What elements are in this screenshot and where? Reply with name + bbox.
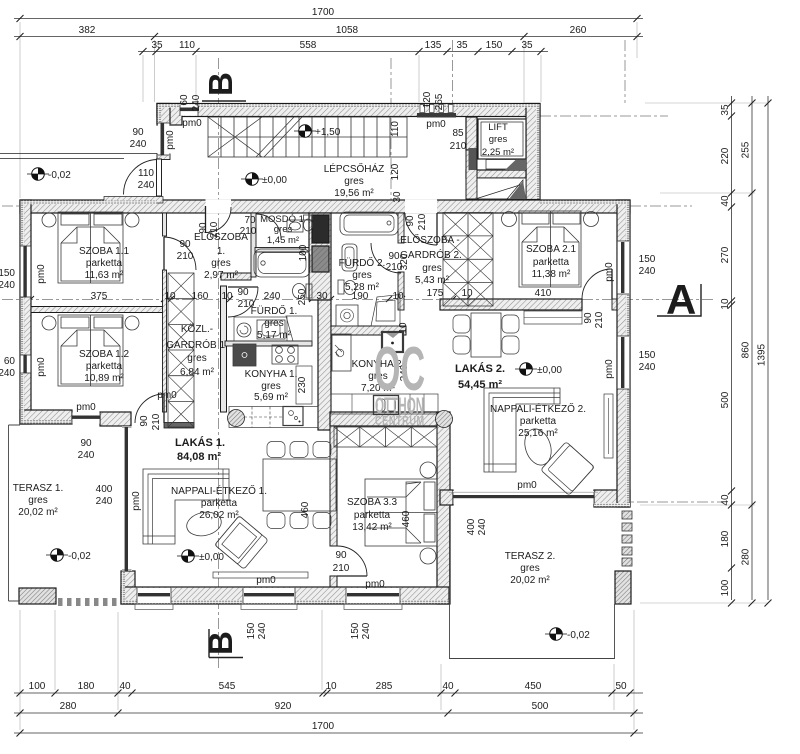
svg-text:SZOBA 2.1: SZOBA 2.1 bbox=[526, 244, 576, 255]
svg-text:70: 70 bbox=[244, 215, 256, 226]
svg-text:150: 150 bbox=[246, 622, 257, 639]
svg-text:TERASZ 2.: TERASZ 2. bbox=[505, 551, 556, 562]
svg-text:40: 40 bbox=[119, 681, 131, 692]
svg-text:180: 180 bbox=[78, 681, 95, 692]
svg-text:210: 210 bbox=[238, 299, 255, 310]
svg-text:90: 90 bbox=[80, 438, 92, 449]
svg-text:210: 210 bbox=[177, 251, 194, 262]
svg-text:parketta: parketta bbox=[520, 416, 557, 427]
svg-text:240: 240 bbox=[639, 266, 656, 277]
svg-text:pm0: pm0 bbox=[131, 491, 142, 511]
svg-text:54,45 m²: 54,45 m² bbox=[458, 379, 502, 391]
svg-text:40: 40 bbox=[720, 494, 731, 506]
svg-text:pm0: pm0 bbox=[604, 359, 615, 379]
svg-text:220: 220 bbox=[720, 147, 731, 164]
svg-text:1,45 m²: 1,45 m² bbox=[267, 235, 299, 246]
svg-text:20,02 m²: 20,02 m² bbox=[18, 507, 58, 518]
svg-text:SZOBA 3.3: SZOBA 3.3 bbox=[347, 497, 397, 508]
svg-text:500: 500 bbox=[532, 701, 549, 712]
svg-text:150: 150 bbox=[0, 268, 15, 279]
svg-text:240: 240 bbox=[138, 180, 155, 191]
svg-text:NAPPALI-ÉTKEZŐ 1.: NAPPALI-ÉTKEZŐ 1. bbox=[171, 483, 267, 497]
svg-text:120: 120 bbox=[422, 91, 433, 108]
svg-text:26,02 m²: 26,02 m² bbox=[199, 510, 239, 521]
svg-text:230: 230 bbox=[297, 376, 308, 393]
svg-text:558: 558 bbox=[300, 40, 317, 51]
svg-text:285: 285 bbox=[376, 681, 393, 692]
svg-text:10: 10 bbox=[720, 298, 731, 310]
svg-text:40: 40 bbox=[442, 681, 454, 692]
svg-text:1395: 1395 bbox=[757, 343, 768, 366]
svg-text:pm0: pm0 bbox=[76, 402, 96, 413]
svg-text:KONYHA 1.: KONYHA 1. bbox=[245, 369, 298, 380]
svg-text:460: 460 bbox=[300, 501, 311, 518]
svg-text:160: 160 bbox=[192, 291, 209, 302]
svg-text:pm0: pm0 bbox=[36, 264, 47, 284]
svg-text:90: 90 bbox=[139, 415, 150, 427]
svg-text:25,16 m²: 25,16 m² bbox=[518, 428, 558, 439]
svg-text:pm0: pm0 bbox=[165, 130, 176, 150]
svg-text:400: 400 bbox=[466, 518, 477, 535]
svg-text:120: 120 bbox=[390, 163, 401, 180]
svg-text:85: 85 bbox=[452, 128, 464, 139]
svg-text:10: 10 bbox=[461, 288, 473, 299]
svg-text:SZOBA 1.2: SZOBA 1.2 bbox=[79, 349, 129, 360]
svg-text:5,43 m²: 5,43 m² bbox=[415, 275, 450, 286]
svg-text:10: 10 bbox=[221, 291, 233, 302]
svg-text:pm0: pm0 bbox=[604, 262, 615, 282]
svg-text:10: 10 bbox=[325, 681, 337, 692]
svg-text:+1,50: +1,50 bbox=[315, 127, 341, 138]
svg-text:gres: gres bbox=[344, 176, 363, 187]
svg-text:KÖZL.-: KÖZL.- bbox=[181, 323, 213, 335]
svg-text:100: 100 bbox=[29, 681, 46, 692]
svg-text:pm0: pm0 bbox=[426, 119, 446, 130]
svg-text:LAKÁS 2.: LAKÁS 2. bbox=[455, 362, 505, 375]
svg-text:pm0: pm0 bbox=[256, 575, 276, 586]
svg-text:210: 210 bbox=[333, 563, 350, 574]
svg-text:1.: 1. bbox=[217, 246, 225, 257]
svg-text:ELŐSZOBA -: ELŐSZOBA - bbox=[400, 232, 459, 246]
svg-text:450: 450 bbox=[525, 681, 542, 692]
svg-text:13,42 m²: 13,42 m² bbox=[352, 522, 392, 533]
svg-text:11,63 m²: 11,63 m² bbox=[85, 270, 124, 281]
svg-text:gres: gres bbox=[187, 353, 206, 364]
svg-text:110: 110 bbox=[390, 121, 401, 137]
svg-text:100: 100 bbox=[298, 244, 309, 261]
svg-text:-0,02: -0,02 bbox=[48, 170, 71, 181]
svg-text:90: 90 bbox=[335, 550, 347, 561]
svg-text:2,97 m²: 2,97 m² bbox=[204, 270, 239, 281]
svg-text:375: 375 bbox=[91, 291, 108, 302]
svg-text:FÜRDŐ 1.: FÜRDŐ 1. bbox=[251, 303, 298, 317]
svg-text:240: 240 bbox=[96, 496, 113, 507]
svg-text:35: 35 bbox=[521, 40, 533, 51]
svg-text:920: 920 bbox=[275, 701, 292, 712]
svg-text:-0,02: -0,02 bbox=[68, 551, 91, 562]
svg-text:SZOBA 1.1: SZOBA 1.1 bbox=[79, 246, 129, 257]
svg-text:60: 60 bbox=[4, 356, 16, 367]
svg-text:100: 100 bbox=[720, 579, 731, 596]
svg-text:gres: gres bbox=[28, 495, 47, 506]
svg-text:210: 210 bbox=[240, 226, 257, 237]
svg-text:270: 270 bbox=[720, 246, 731, 263]
svg-text:260: 260 bbox=[570, 25, 587, 36]
svg-text:240: 240 bbox=[477, 518, 488, 535]
svg-text:110: 110 bbox=[179, 40, 195, 51]
svg-text:280: 280 bbox=[741, 548, 752, 565]
svg-text:110: 110 bbox=[138, 168, 154, 179]
svg-text:gres: gres bbox=[422, 263, 441, 274]
svg-text:150: 150 bbox=[350, 622, 361, 639]
svg-text:250: 250 bbox=[297, 288, 308, 305]
svg-text:280: 280 bbox=[60, 701, 77, 712]
svg-text:20,02 m²: 20,02 m² bbox=[510, 575, 550, 586]
svg-text:90: 90 bbox=[179, 239, 191, 250]
svg-text:LIFT: LIFT bbox=[488, 122, 508, 133]
svg-text:84,08 m²: 84,08 m² bbox=[177, 451, 221, 463]
svg-text:parketta: parketta bbox=[533, 257, 570, 268]
svg-text:90: 90 bbox=[237, 287, 249, 298]
svg-text:B: B bbox=[202, 72, 239, 96]
svg-text:240: 240 bbox=[130, 139, 147, 150]
svg-text:210: 210 bbox=[417, 213, 428, 230]
svg-text:gres: gres bbox=[520, 563, 539, 574]
svg-text:240: 240 bbox=[639, 362, 656, 373]
svg-text:90: 90 bbox=[388, 251, 400, 262]
svg-text:210: 210 bbox=[450, 141, 467, 152]
svg-text:50: 50 bbox=[615, 681, 627, 692]
svg-text:150: 150 bbox=[639, 350, 656, 361]
svg-text:382: 382 bbox=[79, 25, 96, 36]
svg-text:1700: 1700 bbox=[312, 7, 335, 18]
svg-text:-0,02: -0,02 bbox=[567, 630, 590, 641]
svg-text:LAKÁS 1.: LAKÁS 1. bbox=[175, 436, 225, 449]
svg-text:240: 240 bbox=[361, 622, 372, 639]
svg-text:5,69 m²: 5,69 m² bbox=[254, 392, 289, 403]
svg-text:pm0: pm0 bbox=[182, 118, 202, 129]
svg-text:TERASZ 1.: TERASZ 1. bbox=[13, 483, 64, 494]
svg-text:240: 240 bbox=[0, 280, 15, 291]
svg-text:240: 240 bbox=[0, 368, 15, 379]
svg-text:6,84 m²: 6,84 m² bbox=[180, 367, 215, 378]
svg-text:150: 150 bbox=[486, 40, 503, 51]
svg-text:240: 240 bbox=[191, 94, 202, 111]
svg-text:gres: gres bbox=[352, 270, 371, 281]
svg-text:35: 35 bbox=[151, 40, 163, 51]
svg-text:19,56 m²: 19,56 m² bbox=[334, 188, 374, 199]
svg-text:255: 255 bbox=[741, 141, 752, 158]
svg-text:10: 10 bbox=[398, 322, 409, 334]
svg-text:210: 210 bbox=[386, 262, 403, 273]
svg-text:90: 90 bbox=[405, 215, 416, 227]
svg-text:GARDRÓB 1.: GARDRÓB 1. bbox=[166, 338, 228, 351]
svg-text:30: 30 bbox=[316, 291, 328, 302]
svg-text:210: 210 bbox=[594, 311, 605, 328]
svg-text:90: 90 bbox=[198, 222, 209, 234]
svg-text:175: 175 bbox=[427, 288, 444, 299]
svg-text:460: 460 bbox=[401, 510, 412, 527]
svg-text:gres: gres bbox=[211, 258, 230, 269]
svg-text:240: 240 bbox=[78, 450, 95, 461]
svg-text:B: B bbox=[202, 631, 239, 655]
svg-text:190: 190 bbox=[352, 291, 369, 302]
svg-text:545: 545 bbox=[219, 681, 236, 692]
svg-text:265: 265 bbox=[434, 93, 445, 110]
svg-text:30: 30 bbox=[392, 191, 403, 203]
svg-text:150: 150 bbox=[639, 254, 656, 265]
svg-text:35: 35 bbox=[720, 104, 731, 116]
svg-text:gres: gres bbox=[274, 224, 293, 235]
svg-text:parketta: parketta bbox=[201, 498, 238, 509]
svg-text:pm0: pm0 bbox=[517, 480, 537, 491]
svg-text:210: 210 bbox=[209, 221, 220, 238]
svg-text:135: 135 bbox=[425, 40, 442, 51]
svg-text:pm0: pm0 bbox=[157, 390, 177, 401]
svg-text:pm0: pm0 bbox=[365, 579, 385, 590]
svg-text:gres: gres bbox=[261, 381, 280, 392]
svg-text:210: 210 bbox=[151, 413, 162, 430]
svg-text:gres: gres bbox=[264, 318, 283, 329]
svg-text:40: 40 bbox=[720, 195, 731, 207]
svg-text:240: 240 bbox=[257, 622, 268, 639]
svg-text:±0,00: ±0,00 bbox=[537, 365, 562, 376]
svg-text:1058: 1058 bbox=[336, 25, 359, 36]
svg-text:10,89 m²: 10,89 m² bbox=[84, 373, 124, 384]
svg-text:pm0: pm0 bbox=[36, 357, 47, 377]
svg-text:2,25 m²: 2,25 m² bbox=[482, 147, 514, 158]
svg-text:FÜRDŐ 2.: FÜRDŐ 2. bbox=[339, 255, 386, 269]
svg-text:LÉPCSŐHÁZ: LÉPCSŐHÁZ bbox=[324, 161, 385, 175]
svg-text:CENTRUM: CENTRUM bbox=[375, 415, 425, 429]
svg-text:410: 410 bbox=[535, 288, 552, 299]
svg-text:±0,00: ±0,00 bbox=[199, 552, 224, 563]
svg-text:180: 180 bbox=[720, 530, 731, 547]
svg-text:60: 60 bbox=[179, 94, 190, 106]
svg-text:parketta: parketta bbox=[86, 361, 123, 372]
svg-text:35: 35 bbox=[456, 40, 468, 51]
svg-text:NAPPALI-ÉTKEZŐ 2.: NAPPALI-ÉTKEZŐ 2. bbox=[490, 401, 586, 415]
svg-text:90: 90 bbox=[583, 312, 594, 324]
svg-text:parketta: parketta bbox=[354, 510, 391, 521]
svg-text:400: 400 bbox=[96, 484, 113, 495]
svg-text:gres: gres bbox=[489, 134, 508, 145]
svg-text:10: 10 bbox=[164, 291, 176, 302]
svg-text:parketta: parketta bbox=[86, 258, 123, 269]
svg-text:±0,00: ±0,00 bbox=[262, 175, 287, 186]
svg-text:5,17 m²: 5,17 m² bbox=[257, 330, 292, 341]
svg-text:860: 860 bbox=[741, 341, 752, 358]
svg-text:500: 500 bbox=[720, 391, 731, 408]
svg-text:10: 10 bbox=[392, 291, 404, 302]
svg-text:11,38 m²: 11,38 m² bbox=[532, 269, 571, 280]
svg-text:240: 240 bbox=[264, 291, 281, 302]
svg-text:1700: 1700 bbox=[312, 721, 335, 732]
svg-text:90: 90 bbox=[132, 127, 144, 138]
